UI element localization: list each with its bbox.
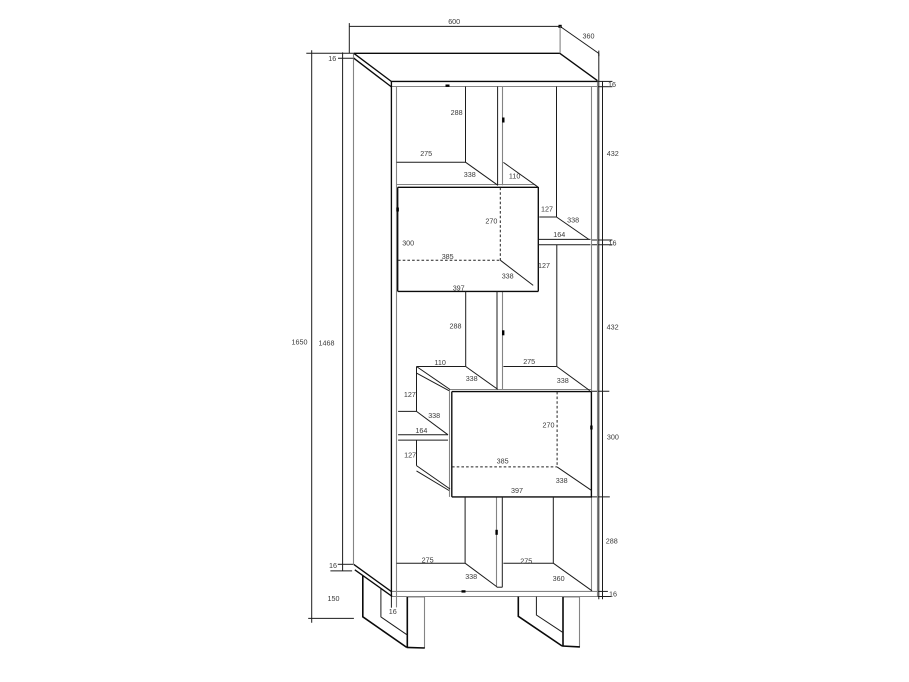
svg-text:300: 300 (607, 433, 619, 442)
svg-text:16: 16 (608, 80, 616, 89)
svg-text:288: 288 (450, 321, 462, 330)
svg-text:275: 275 (520, 556, 532, 565)
svg-text:397: 397 (511, 486, 523, 495)
svg-text:432: 432 (607, 323, 619, 332)
svg-text:338: 338 (556, 476, 568, 485)
svg-text:275: 275 (523, 357, 535, 366)
svg-text:385: 385 (442, 252, 454, 261)
svg-text:300: 300 (402, 239, 414, 248)
svg-text:16: 16 (609, 238, 617, 247)
svg-text:338: 338 (466, 374, 478, 383)
svg-text:164: 164 (553, 230, 565, 239)
svg-text:338: 338 (428, 411, 440, 420)
svg-text:385: 385 (497, 457, 509, 466)
svg-text:110: 110 (434, 358, 445, 367)
svg-text:270: 270 (543, 421, 555, 430)
svg-text:288: 288 (606, 536, 618, 545)
svg-text:164: 164 (415, 426, 427, 435)
svg-text:338: 338 (465, 572, 477, 581)
svg-text:360: 360 (583, 31, 595, 40)
svg-text:397: 397 (453, 284, 465, 293)
svg-text:600: 600 (448, 17, 460, 26)
svg-text:275: 275 (420, 149, 432, 158)
svg-text:1468: 1468 (319, 338, 335, 347)
svg-text:127: 127 (404, 390, 416, 399)
svg-text:127: 127 (541, 205, 553, 214)
svg-text:16: 16 (329, 561, 337, 570)
svg-text:338: 338 (557, 376, 569, 385)
svg-text:432: 432 (607, 149, 619, 158)
svg-text:338: 338 (567, 216, 579, 225)
svg-text:360: 360 (553, 574, 565, 583)
svg-text:16: 16 (328, 54, 336, 63)
svg-text:110: 110 (509, 172, 520, 181)
svg-text:1650: 1650 (292, 337, 308, 346)
svg-text:127: 127 (404, 450, 416, 459)
svg-text:338: 338 (502, 271, 514, 280)
svg-text:16: 16 (389, 607, 397, 616)
svg-text:338: 338 (464, 170, 476, 179)
svg-text:16: 16 (609, 590, 617, 599)
svg-text:275: 275 (422, 555, 434, 564)
svg-text:150: 150 (328, 594, 340, 603)
svg-text:288: 288 (451, 108, 463, 117)
svg-text:127: 127 (538, 261, 550, 270)
svg-text:270: 270 (485, 217, 497, 226)
